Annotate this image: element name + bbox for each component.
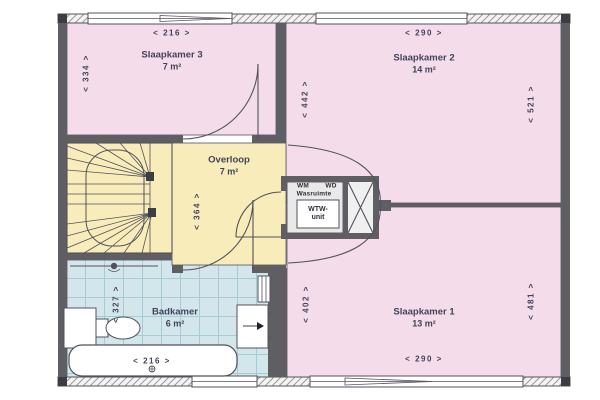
room-area: 7 m²	[208, 166, 250, 178]
floor-plan: < 216 > < 334 > < 290 > < 442 > < 521 > …	[0, 0, 600, 400]
shaft-wall	[343, 182, 348, 233]
wall-sk3-stairs	[64, 135, 183, 143]
wall-sk2-sk1	[377, 203, 561, 207]
room-slaapkamer-3-floor	[67, 23, 276, 135]
room-name: Slaapkamer 3	[141, 50, 202, 62]
drain-icon	[149, 366, 155, 372]
dim-slaapkamer2-depth-left: < 442 >	[301, 80, 310, 118]
wall-corner	[58, 14, 67, 23]
wall-badkamer-sk1	[268, 268, 287, 377]
mechanical-vent-box	[237, 305, 272, 348]
room-slaapkamer-3-label: Slaapkamer 3 7 m²	[141, 50, 202, 73]
wasruimte-wall	[281, 233, 379, 239]
wasruimte-wall	[373, 176, 379, 239]
dim-slaapkamer3-depth: < 334 >	[82, 54, 91, 92]
washing-machine-label: WM	[297, 183, 309, 190]
wall-overloop-badkamer	[172, 265, 183, 273]
window-slaapkamer2	[316, 13, 467, 24]
room-name: Slaapkamer 2	[393, 53, 454, 65]
wall-sk3-overloop	[252, 135, 276, 143]
room-name: Slaapkamer 1	[393, 307, 454, 319]
dim-slaapkamer3-width: < 216 >	[153, 29, 191, 38]
room-wasruimte-label: Wasruimte	[297, 191, 332, 198]
dim-slaapkamer1-depth-left: < 402 >	[302, 285, 311, 323]
dim-badkamer-width: < 216 >	[133, 357, 171, 366]
room-area: 6 m²	[152, 318, 198, 330]
wall-sk3-sk2	[276, 23, 286, 143]
washbasin	[64, 308, 96, 348]
dim-badkamer-depth: < 327 >	[112, 285, 121, 323]
wall-stairs-badkamer	[58, 253, 172, 260]
room-overloop-label: Overloop 7 m²	[208, 155, 250, 178]
wasruimte-wall	[281, 176, 287, 191]
radiator	[258, 276, 270, 302]
room-name: Badkamer	[152, 307, 198, 319]
wall-right	[561, 14, 570, 386]
window-slaapkamer1	[310, 376, 523, 387]
dim-slaapkamer1-width: < 290 >	[405, 355, 443, 364]
staircase-floor	[67, 143, 172, 253]
wasruimte-wall	[281, 176, 379, 182]
room-name: Overloop	[208, 155, 250, 167]
room-area: 13 m²	[393, 318, 454, 330]
dim-overloop-depth: < 364 >	[193, 192, 202, 230]
wtw-unit-label-line2: unit	[312, 214, 325, 222]
room-area: 7 m²	[141, 61, 202, 73]
dim-slaapkamer2-width: < 290 >	[405, 29, 443, 38]
dryer-label: WD	[325, 183, 336, 190]
window-badkamer	[192, 376, 257, 387]
window-slaapkamer3	[88, 13, 232, 24]
wtw-unit-label-line1: WTW-	[308, 206, 328, 214]
dim-slaapkamer1-depth-right: < 481 >	[527, 282, 536, 320]
wall-corner	[561, 14, 570, 23]
stair-newel	[148, 208, 156, 217]
stair-newel	[146, 172, 154, 181]
dim-slaapkamer2-depth-right: < 521 >	[527, 85, 536, 123]
room-slaapkamer-1-label: Slaapkamer 1 13 m²	[393, 307, 454, 330]
room-badkamer-label: Badkamer 6 m²	[152, 307, 198, 330]
room-area: 14 m²	[393, 64, 454, 76]
room-slaapkamer-2-label: Slaapkamer 2 14 m²	[393, 53, 454, 76]
wall-corner	[58, 377, 67, 386]
wall-corner	[561, 377, 570, 386]
wasruimte-wall	[281, 224, 287, 239]
